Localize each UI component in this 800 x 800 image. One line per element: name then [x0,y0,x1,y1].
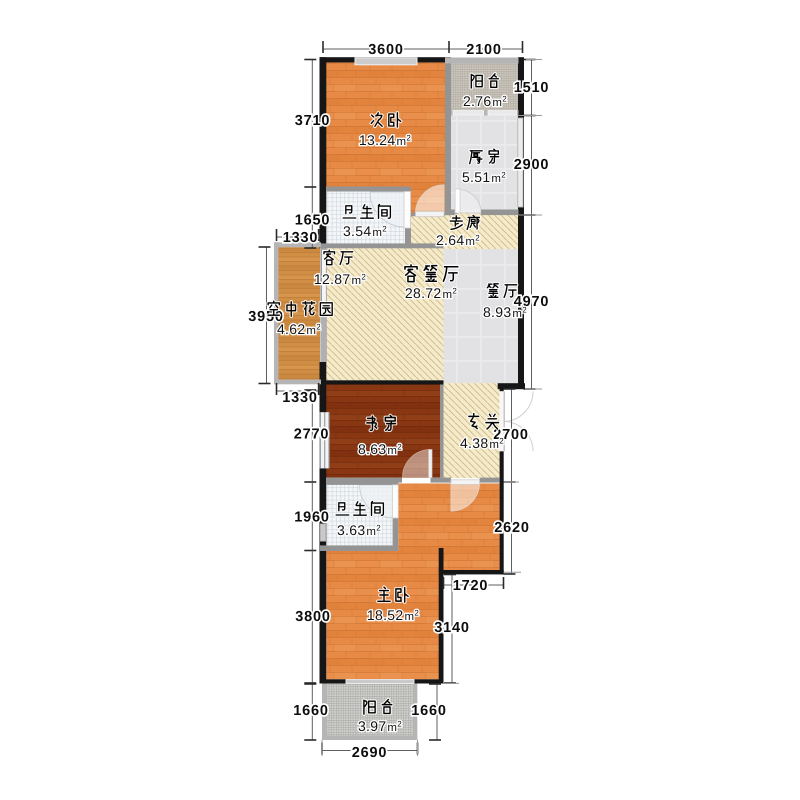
svg-text:3710: 3710 [295,113,330,129]
svg-text:1510: 1510 [514,80,549,96]
svg-text:1720: 1720 [453,578,488,594]
svg-text:1650: 1650 [295,213,330,229]
svg-text:2770: 2770 [294,427,329,443]
svg-text:2690: 2690 [352,745,387,761]
svg-text:1960: 1960 [294,510,329,526]
svg-text:1660: 1660 [293,703,328,719]
svg-text:1330: 1330 [282,390,317,406]
svg-text:2900: 2900 [514,157,549,173]
svg-text:1660: 1660 [411,703,446,719]
svg-text:2100: 2100 [466,42,501,58]
svg-text:3800: 3800 [295,609,330,625]
svg-text:1330: 1330 [283,230,318,246]
svg-text:3140: 3140 [434,620,469,636]
svg-text:3600: 3600 [368,42,403,58]
svg-text:2620: 2620 [494,520,529,536]
